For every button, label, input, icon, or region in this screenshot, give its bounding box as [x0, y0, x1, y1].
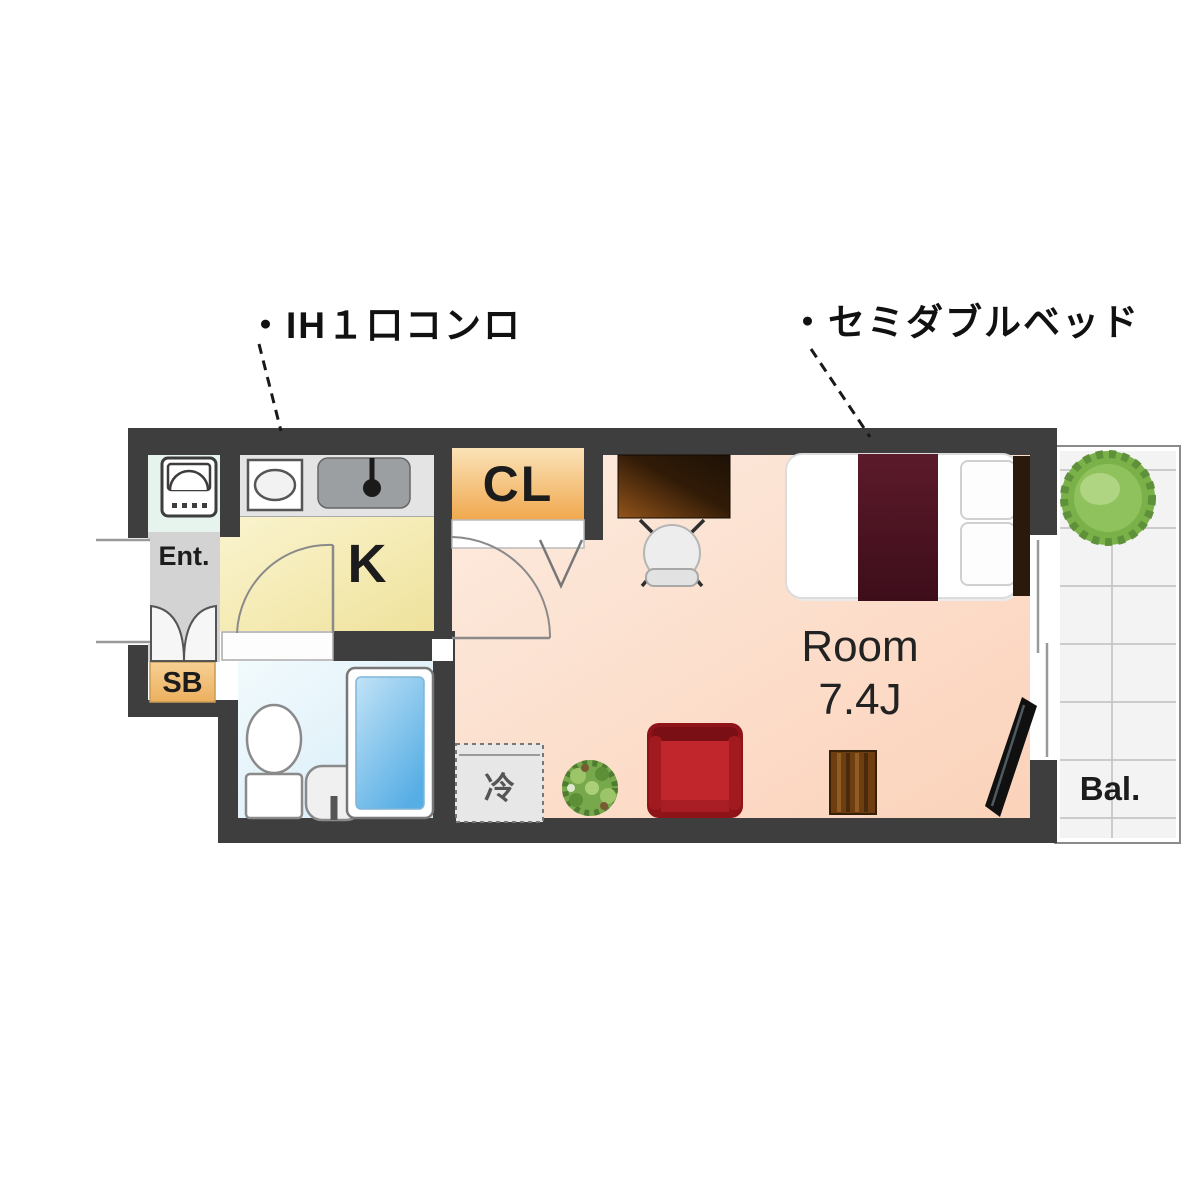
- leader-line-bed: [811, 349, 870, 437]
- floorplan-drawing: [0, 0, 1200, 1200]
- side-table-icon: [830, 751, 876, 814]
- plant-icon: [562, 760, 618, 816]
- entrance-label: Ent.: [148, 541, 220, 572]
- bed-pillow: [961, 523, 1015, 585]
- refrigerator-label: 冷: [456, 763, 543, 808]
- bathroom-door: [222, 632, 333, 660]
- kitchen-label: K: [322, 533, 412, 595]
- bed-icon: [786, 454, 1030, 601]
- bed-blanket: [858, 454, 938, 601]
- annotation-ih-stove: ・IH１口コンロ: [247, 295, 522, 349]
- chair-icon: [640, 520, 704, 586]
- room-name: Room: [760, 620, 960, 673]
- shoe-box-label: SB: [150, 667, 215, 700]
- leader-line-ih: [259, 344, 281, 431]
- hall-threshold: [432, 639, 453, 661]
- balcony-label: Bal.: [1062, 770, 1158, 808]
- ih-stove-icon: [248, 460, 302, 510]
- bed-pillow: [961, 461, 1015, 519]
- bathtub-icon: [347, 668, 433, 818]
- kitchen-sink-icon: [318, 458, 410, 508]
- floorplan-page: ・IH１口コンロ ・セミダブルベッド Ent. SB K CL 冷 Room 7…: [0, 0, 1200, 1200]
- sliding-window-icon: [1030, 535, 1057, 760]
- leader-lines: [259, 344, 870, 437]
- washing-machine-icon: [162, 458, 216, 516]
- annotation-semi-double-bed: ・セミダブルベッド: [789, 292, 1140, 346]
- closet-label: CL: [452, 448, 584, 520]
- room-label: Room 7.4J: [760, 620, 960, 726]
- entrance-opening: [96, 539, 150, 644]
- toilet-icon: [246, 705, 302, 818]
- sofa-icon: [647, 723, 743, 818]
- tree-icon: [1061, 451, 1155, 545]
- room-size: 7.4J: [760, 673, 960, 726]
- bed-headboard: [1013, 456, 1030, 596]
- desk-icon: [618, 455, 730, 518]
